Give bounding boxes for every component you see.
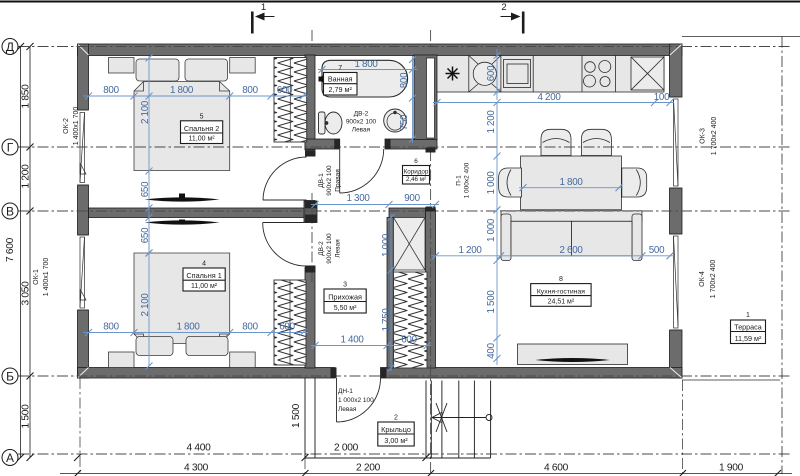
svg-text:2 100: 2 100 <box>140 293 151 317</box>
svg-text:Прихожая: Прихожая <box>328 293 362 302</box>
svg-text:2,79 м²: 2,79 м² <box>329 85 353 94</box>
svg-text:11,00 м²: 11,00 м² <box>189 136 216 143</box>
svg-text:В: В <box>6 204 14 218</box>
svg-text:2 600: 2 600 <box>559 245 583 256</box>
svg-text:4 600: 4 600 <box>544 463 569 474</box>
svg-text:1 000: 1 000 <box>486 171 497 195</box>
svg-text:1 500: 1 500 <box>21 404 32 429</box>
svg-text:1 700х2 400: 1 700х2 400 <box>710 260 717 299</box>
svg-text:ОК-4: ОК-4 <box>699 271 706 287</box>
svg-text:Левая: Левая <box>335 239 342 258</box>
svg-text:3 050: 3 050 <box>21 281 32 306</box>
svg-text:1 800: 1 800 <box>176 322 200 333</box>
svg-text:800: 800 <box>103 322 119 333</box>
svg-text:ОК-2: ОК-2 <box>63 118 70 134</box>
svg-text:1 750: 1 750 <box>381 308 392 332</box>
svg-text:2 100: 2 100 <box>140 100 151 124</box>
svg-text:800: 800 <box>242 322 258 333</box>
svg-text:Крыльцо: Крыльцо <box>381 425 411 434</box>
svg-text:800: 800 <box>103 85 119 96</box>
svg-text:1 200: 1 200 <box>21 164 32 189</box>
svg-text:4: 4 <box>202 261 206 268</box>
svg-text:ОК-3: ОК-3 <box>700 128 707 144</box>
svg-text:2 000: 2 000 <box>334 443 359 454</box>
svg-text:11,00 м²: 11,00 м² <box>191 283 218 290</box>
svg-text:Терраса: Терраса <box>734 323 762 332</box>
svg-text:1 900: 1 900 <box>719 463 744 474</box>
svg-text:900: 900 <box>404 193 420 204</box>
svg-text:600: 600 <box>279 322 295 333</box>
svg-text:900х2 100: 900х2 100 <box>326 165 333 196</box>
svg-text:Спальня 1: Спальня 1 <box>186 271 221 280</box>
svg-text:4 200: 4 200 <box>537 92 561 103</box>
svg-text:1 500: 1 500 <box>486 290 497 314</box>
svg-text:Кухня-гостиная: Кухня-гостиная <box>537 289 585 296</box>
svg-text:1 000: 1 000 <box>486 218 497 242</box>
svg-text:900х2 100: 900х2 100 <box>326 233 333 264</box>
svg-text:Б: Б <box>6 369 14 383</box>
svg-text:24,51 м²: 24,51 м² <box>548 299 575 306</box>
svg-text:1 400х1 700: 1 400х1 700 <box>73 107 80 146</box>
svg-text:Спальня 2: Спальня 2 <box>184 124 219 133</box>
svg-text:600: 600 <box>401 335 417 346</box>
svg-text:Коридор: Коридор <box>404 169 429 176</box>
svg-text:1: 1 <box>746 312 750 319</box>
svg-text:1 850: 1 850 <box>21 84 32 109</box>
svg-text:7 600: 7 600 <box>5 237 16 262</box>
svg-text:ДВ-2: ДВ-2 <box>318 241 325 256</box>
svg-text:600: 600 <box>486 65 497 81</box>
svg-text:500: 500 <box>649 245 665 256</box>
svg-text:100: 100 <box>654 92 670 103</box>
svg-text:650: 650 <box>140 181 151 197</box>
svg-text:2: 2 <box>501 2 506 13</box>
svg-text:ОК-1: ОК-1 <box>33 269 40 285</box>
svg-text:1 200: 1 200 <box>486 110 497 134</box>
svg-text:1 800: 1 800 <box>354 59 378 70</box>
svg-text:1 200: 1 200 <box>458 245 482 256</box>
svg-text:800: 800 <box>242 85 258 96</box>
svg-text:ДВ-2: ДВ-2 <box>354 111 369 118</box>
svg-text:400: 400 <box>486 342 497 358</box>
svg-text:1 000: 1 000 <box>381 233 392 257</box>
svg-text:Правая: Правая <box>335 169 342 192</box>
svg-text:750: 750 <box>399 114 410 130</box>
svg-text:4 300: 4 300 <box>184 463 209 474</box>
svg-text:2: 2 <box>394 415 398 422</box>
svg-text:11,59 м²: 11,59 м² <box>735 334 762 343</box>
svg-text:Левая: Левая <box>352 127 371 134</box>
svg-text:5,50 м²: 5,50 м² <box>334 305 357 312</box>
svg-text:1 700х2 400: 1 700х2 400 <box>711 117 718 156</box>
svg-text:8: 8 <box>559 276 563 283</box>
svg-text:1 800: 1 800 <box>170 85 194 96</box>
svg-text:1 000х2 100: 1 000х2 100 <box>338 397 374 404</box>
svg-text:1: 1 <box>261 2 266 13</box>
svg-text:3: 3 <box>343 282 347 289</box>
svg-text:1 000х2 400: 1 000х2 400 <box>464 162 471 198</box>
svg-text:4 400: 4 400 <box>187 443 212 454</box>
svg-text:600: 600 <box>277 85 293 96</box>
svg-text:7: 7 <box>338 65 342 72</box>
svg-text:Д: Д <box>6 40 14 54</box>
svg-text:1 300: 1 300 <box>346 193 370 204</box>
svg-text:1 400: 1 400 <box>340 335 364 346</box>
svg-text:6: 6 <box>414 158 418 165</box>
svg-text:2,46 м²: 2,46 м² <box>406 176 426 183</box>
svg-text:ДВ-1: ДВ-1 <box>318 173 325 188</box>
svg-text:650: 650 <box>140 227 151 243</box>
svg-text:1 800: 1 800 <box>559 177 583 188</box>
svg-text:5: 5 <box>200 113 204 120</box>
svg-text:Ванная: Ванная <box>328 75 353 84</box>
svg-text:3,00 м²: 3,00 м² <box>384 436 408 445</box>
svg-text:Г: Г <box>7 140 14 154</box>
svg-text:2 200: 2 200 <box>356 463 381 474</box>
svg-text:ДН-1: ДН-1 <box>338 388 353 395</box>
svg-text:П-1: П-1 <box>456 175 463 186</box>
svg-text:800: 800 <box>399 72 410 88</box>
svg-text:1 500: 1 500 <box>291 403 302 428</box>
svg-text:А: А <box>6 451 14 465</box>
svg-text:900х2 100: 900х2 100 <box>346 119 377 126</box>
svg-text:Левая: Левая <box>338 406 357 413</box>
svg-text:1 400х1 700: 1 400х1 700 <box>43 258 50 297</box>
